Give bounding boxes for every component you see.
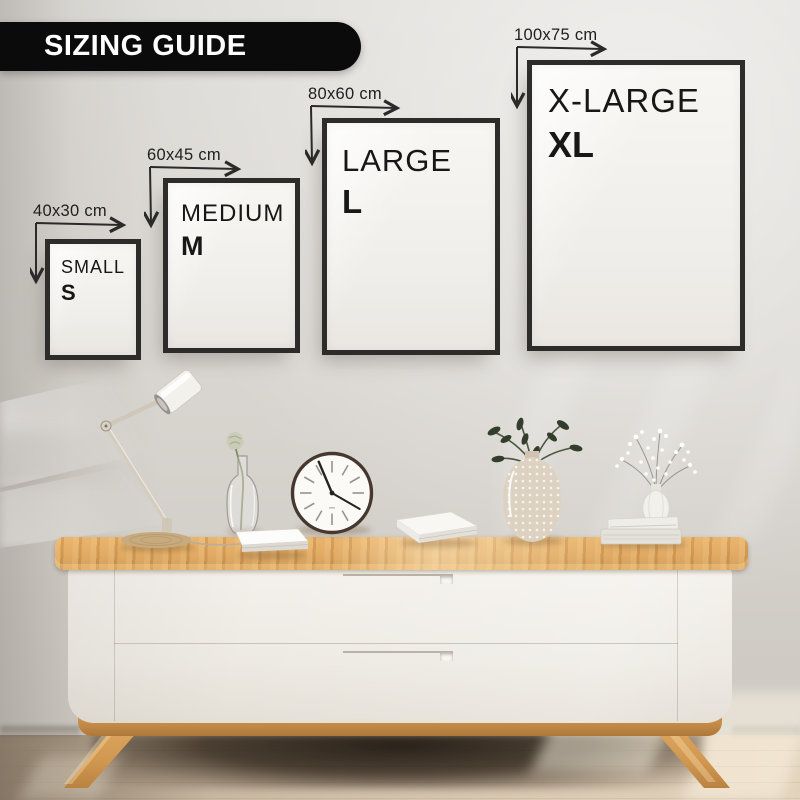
dimension-arrows <box>144 146 256 238</box>
clock-center-pin <box>330 491 335 496</box>
drawer-seam <box>677 570 678 721</box>
dimension-indicator-large: 80x60 cm <box>305 85 417 177</box>
drawer-divider <box>114 643 678 644</box>
flower-stems <box>622 432 690 490</box>
white-book <box>393 508 481 548</box>
handle-slot <box>440 575 453 584</box>
title-banner: SIZING GUIDE <box>0 22 361 71</box>
sizing-guide-poster: SIZING GUIDE SMALL S MEDIUM M LARGE L X-… <box>0 0 800 800</box>
top-drawer-handle <box>343 574 453 584</box>
dimension-indicator-xlarge: 100x75 cm <box>511 26 623 118</box>
bubble-vase-with-plant <box>478 415 590 547</box>
dimension-arrows <box>511 26 623 118</box>
vase-with-flowers-on-books <box>596 420 700 550</box>
drawer-seam <box>114 570 115 721</box>
dimension-indicator-medium: 60x45 cm <box>144 146 256 238</box>
dimension-arrows <box>305 85 417 177</box>
bud-vase-with-flower <box>222 430 264 536</box>
lamp-head <box>151 368 203 417</box>
wall-clock <box>290 451 376 537</box>
stacked-books <box>601 517 681 544</box>
sideboard-body <box>68 568 732 723</box>
desk-lamp <box>80 362 320 552</box>
dimension-indicator-small: 40x30 cm <box>30 202 142 294</box>
size-letter: XL <box>548 124 740 166</box>
page-title: SIZING GUIDE <box>44 30 247 63</box>
lamp-lower-arm <box>106 426 168 524</box>
bottom-drawer-handle <box>343 651 453 661</box>
dimension-arrows <box>30 202 142 294</box>
size-letter: L <box>342 183 495 221</box>
lamp-base-swivel <box>162 518 172 532</box>
handle-slot <box>440 652 453 661</box>
white-notebook <box>228 528 314 560</box>
clock-brand-mark <box>329 507 335 509</box>
flower-head <box>227 432 244 450</box>
